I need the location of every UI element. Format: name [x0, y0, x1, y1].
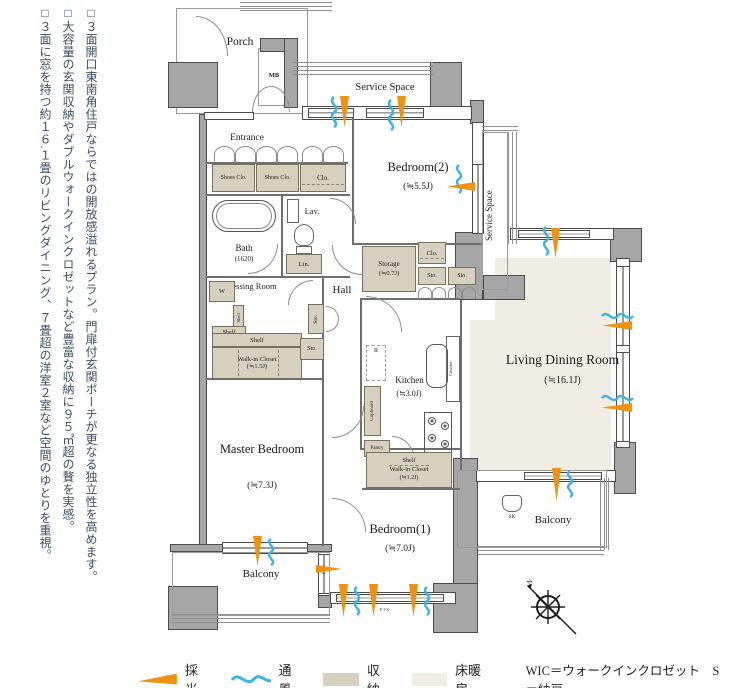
- refrigerator-label: R: [366, 348, 386, 355]
- bedroom2-storage: Sto.: [448, 267, 476, 285]
- kitchen-sink: [426, 344, 448, 388]
- copy-paragraph-2: □大容量の玄関収納やダブルウォークインクロゼットなど豊富な収納に９５㎡超の贅を実…: [62, 6, 74, 590]
- storage-size-label: (≒0.7J): [379, 269, 399, 279]
- closet-door-arch: [256, 146, 277, 163]
- sto-label: Sto.: [313, 315, 319, 324]
- shoes-closet: Shoes Clo.: [212, 164, 255, 192]
- floor-heating-legend-icon: [412, 673, 447, 686]
- legend-abbreviation-notes: WIC＝ウォークインクロゼット S＝納戸: [526, 660, 730, 688]
- walk-in-closet-2: Shelf Walk-in Closet (≒1.2J): [366, 452, 452, 488]
- counter-label: Counter: [448, 342, 453, 396]
- wic1-size-label: (≒1.5J): [247, 363, 267, 370]
- bedroom2-door-arc: [332, 245, 362, 275]
- closet-door-arch: [214, 146, 235, 163]
- shelf-wide: Shelf: [212, 333, 302, 347]
- copy-paragraph-1: □３面開口東南角住戸ならではの開放感溢れるプラン。門扉付玄関ポーチが更なる独立性…: [85, 6, 97, 590]
- closet-door-arch: [277, 146, 298, 163]
- wall-pillar: [470, 100, 484, 124]
- service-space-right-label: Service Space: [484, 158, 495, 274]
- ventilation-legend-label: 通風: [279, 660, 302, 688]
- partition: [362, 488, 460, 490]
- daylight-legend-label: 採光: [185, 660, 208, 688]
- master-bedroom-label: Master Bedroom: [216, 442, 308, 457]
- closet-door-arch: [323, 146, 344, 163]
- wic2-shelf-label: Shelf: [389, 458, 430, 467]
- ventilation-wave-icon: [601, 391, 635, 403]
- bath-door-arc: [248, 244, 278, 274]
- storage-door-arc: [326, 306, 339, 319]
- master-bedroom-size-label: (≒7.3J): [216, 481, 308, 492]
- ventilation-wave-icon: [452, 164, 464, 194]
- bedroom1-label: Bedroom(1): [340, 522, 460, 537]
- toilet-bowl: [294, 224, 314, 246]
- cupboard: Cupboard: [364, 386, 381, 436]
- left-party-wall: [199, 114, 207, 548]
- balcony-right-label: Balcony: [517, 514, 589, 527]
- meter-box-label: MB: [262, 72, 286, 80]
- hall-storage-vertical: Sto.: [308, 304, 324, 334]
- linen-closet: Lin.: [286, 254, 322, 274]
- wic-dash: [278, 350, 279, 376]
- shoes-closet: Shoes Clo.: [256, 164, 299, 192]
- partition: [360, 300, 362, 450]
- service-space-railing: [293, 62, 433, 76]
- closet-dash: [420, 258, 444, 259]
- partition: [352, 243, 482, 245]
- legend: 採光 通風 収納 床暖房 WIC＝ウォークインクロゼット S＝納戸: [138, 660, 730, 688]
- wic2-size-label: (≒1.2J): [400, 475, 419, 483]
- partition: [281, 196, 283, 276]
- washing-machine: W: [209, 281, 235, 302]
- kitchen-size-label: (≒3.0J): [380, 389, 438, 399]
- ventilation-wave-icon: [327, 96, 339, 128]
- shelf-label: Shelf: [236, 313, 241, 323]
- closet-door-arch: [462, 287, 476, 299]
- closet-door-arch: [432, 287, 446, 299]
- service-space-top-label: Service Space: [330, 82, 440, 95]
- wall-pillar: [610, 228, 642, 262]
- entrance-top-wall: [204, 112, 254, 120]
- ventilation-wave-icon: [601, 309, 635, 321]
- bedroom1-size-label: (≒7.0J): [352, 544, 448, 555]
- floor-heating-legend-label: 床暖房: [455, 660, 489, 688]
- floor-plan-page: □３面開口東南角住戸ならではの開放感溢れるプラン。門扉付玄関ポーチが更なる独立性…: [0, 0, 730, 688]
- daylight-arrow-icon: [551, 228, 560, 258]
- storage-legend-icon: [323, 673, 358, 686]
- ventilation-wave-icon: [264, 538, 276, 566]
- closet-dash: [302, 184, 344, 185]
- balcony-left-label: Balcony: [225, 568, 297, 581]
- ventilation-wave-icon: [539, 226, 551, 256]
- cupboard-label: Cupboard: [370, 401, 375, 421]
- balcony-railing: [600, 478, 612, 550]
- partition: [206, 194, 350, 196]
- bedroom2-storage: Sto.: [418, 267, 446, 285]
- service-space-railing: [508, 132, 518, 244]
- living-dining-size-label: (≒16.1J): [505, 375, 620, 387]
- walk-in-closet-1: Walk-in Closet (≒1.5J): [212, 347, 302, 379]
- bathtub-inner: [216, 203, 272, 229]
- ventilation-wave-icon: [350, 586, 362, 616]
- partition: [352, 118, 354, 245]
- storage-door-arc: [326, 319, 339, 332]
- stove-burner: [428, 434, 436, 442]
- balcony-railing: [478, 546, 604, 558]
- closet-door-arch: [448, 287, 462, 299]
- balcony-right-outline: [457, 470, 607, 548]
- closet-door-arch: [302, 146, 323, 163]
- hall-label: Hall: [322, 284, 362, 297]
- wall-pillar: [168, 62, 218, 108]
- wall-pillar: [433, 583, 478, 633]
- dressing-door-arc: [288, 280, 313, 305]
- closet-door-arch: [235, 146, 256, 163]
- partition: [206, 276, 350, 278]
- hall-storage: Sto.: [300, 338, 324, 360]
- slop-sink: [502, 495, 522, 512]
- ventilation-wave-icon: [563, 470, 575, 498]
- wic-dash: [238, 350, 239, 376]
- partition: [460, 300, 462, 470]
- ventilation-wave-icon: [420, 586, 432, 616]
- service-space-railing: [482, 126, 518, 134]
- entrance-label: Entrance: [212, 133, 282, 144]
- balcony-left-outline: [172, 552, 330, 616]
- marketing-copy: □３面開口東南角住戸ならではの開放感溢れるプラン。門扉付玄関ポーチが更なる独立性…: [28, 6, 97, 590]
- lav-label: Lav.: [294, 206, 330, 216]
- slop-sink-label: SK: [502, 515, 522, 521]
- toilet-tank: [296, 246, 312, 254]
- ventilation-legend-icon: [230, 672, 271, 686]
- window: [616, 266, 630, 346]
- balcony-railing: [172, 614, 330, 626]
- ventilation-wave-icon: [384, 99, 396, 131]
- bedroom2-closet: Clo.: [418, 242, 446, 264]
- floor-heating-area: [470, 320, 611, 480]
- storage-room: Storage (≒0.7J): [362, 246, 416, 292]
- storage-label: Storage: [378, 259, 399, 270]
- stove-burner: [428, 417, 436, 425]
- closet-door-arch: [418, 287, 432, 299]
- wall-pillar: [614, 442, 636, 494]
- wic2-label: Walk-in Closet: [389, 466, 428, 474]
- daylight-legend-icon: [138, 674, 177, 685]
- storage-legend-label: 収納: [367, 660, 390, 688]
- fix-window-label: FIX: [374, 607, 396, 612]
- living-dining-label: Living Dining Room: [480, 352, 645, 368]
- ld-door-arc: [366, 296, 402, 332]
- copy-paragraph-3: □３面に窓を持つ約１６.１畳のリビングダイニング、７畳超の洋室２室など空間のゆと…: [39, 6, 51, 590]
- stove-burner: [441, 422, 449, 430]
- entrance-closet: Clo.: [300, 164, 346, 192]
- stove-burner: [441, 440, 449, 448]
